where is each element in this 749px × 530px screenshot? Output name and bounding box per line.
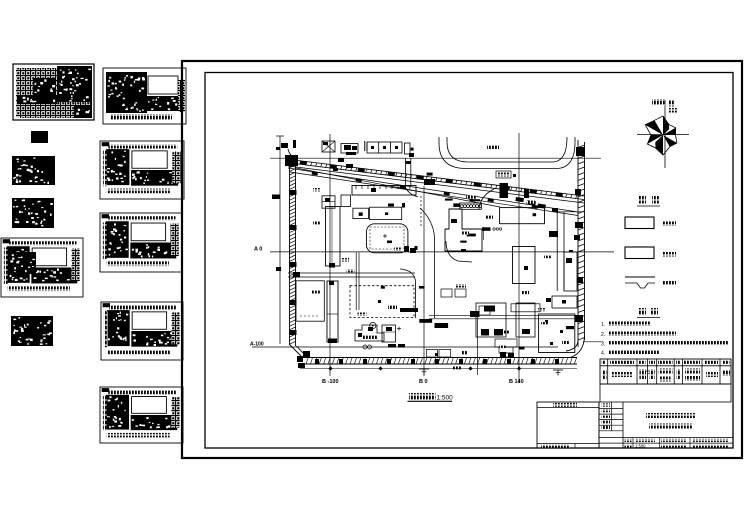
svg-text:A-100: A-100 bbox=[250, 342, 264, 348]
svg-text:1:500: 1:500 bbox=[635, 444, 646, 449]
svg-text:B 0: B 0 bbox=[419, 379, 428, 385]
svg-text:B 140: B 140 bbox=[509, 379, 524, 385]
svg-text:1:500: 1:500 bbox=[437, 395, 454, 402]
svg-text:3.: 3. bbox=[601, 342, 605, 348]
svg-text:A 0: A 0 bbox=[254, 247, 262, 253]
svg-text:1.: 1. bbox=[601, 322, 605, 328]
svg-text:4.: 4. bbox=[601, 351, 605, 357]
svg-text:B -100: B -100 bbox=[322, 379, 339, 385]
svg-text:2.: 2. bbox=[601, 332, 605, 338]
